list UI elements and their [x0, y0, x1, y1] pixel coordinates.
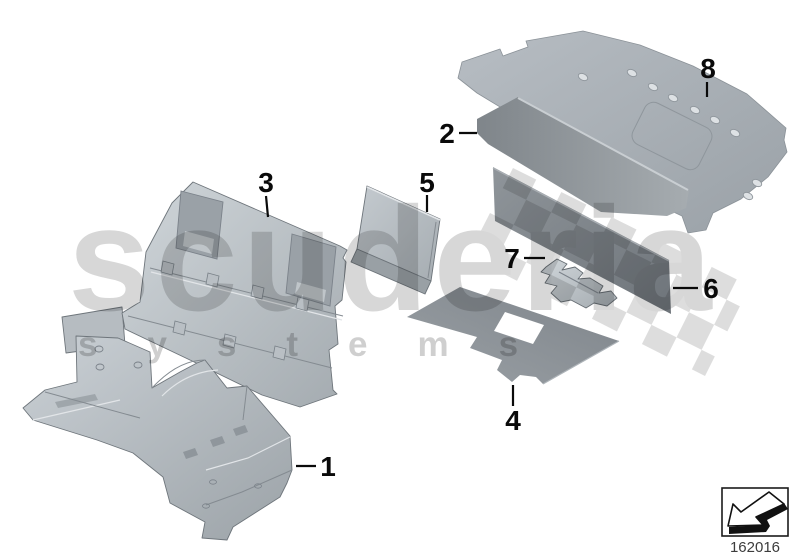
diagram-canvas: 1 2 3 4 5 6 7 8 162016 [0, 0, 800, 560]
footer-block: 162016 [722, 488, 788, 556]
callout-2: 2 [439, 118, 455, 149]
callout-8: 8 [700, 53, 716, 84]
callout-1: 1 [320, 451, 336, 482]
drawing-number: 162016 [730, 539, 780, 556]
callout-3: 3 [258, 167, 274, 198]
callout-7: 7 [504, 243, 520, 274]
callout-4: 4 [505, 405, 521, 436]
parts-illustration: 1 2 3 4 5 6 7 8 162016 [0, 0, 800, 560]
callout-5: 5 [419, 167, 435, 198]
callout-6: 6 [703, 273, 719, 304]
